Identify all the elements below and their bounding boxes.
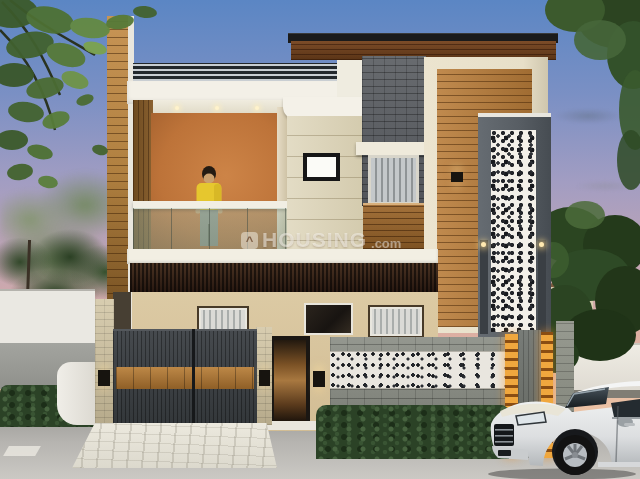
gate-split-line: [192, 329, 195, 425]
main-entry-door: [270, 336, 310, 425]
watermark-brand: HOUSING: [262, 228, 367, 252]
window-ledge: [356, 142, 433, 155]
ceiling-light: [215, 106, 219, 110]
entry-wall-lamp: [313, 371, 325, 387]
housing-caret-icon: ^: [241, 232, 258, 249]
tree-top-left: [0, 0, 175, 215]
perforated-jali-panel: [491, 130, 536, 332]
hedge-right: [316, 405, 509, 459]
gate-lamp-left: [98, 370, 110, 386]
jali-lamp: [481, 242, 486, 247]
road-marking: [3, 446, 41, 456]
white-suv: [488, 378, 640, 479]
paved-driveway: [70, 423, 277, 468]
gate-lamp-right: [259, 370, 270, 386]
gate-wood-band: [116, 367, 254, 389]
jali-lamp: [539, 242, 544, 247]
ground-window-right: [368, 305, 424, 338]
soffit-slat-band: [130, 263, 438, 293]
house-render-scene: ^ HOUSING .com: [0, 0, 640, 479]
left-boundary-wall-upper: [0, 289, 95, 347]
upper-window: [303, 153, 340, 181]
jali-side-bar: [538, 240, 546, 334]
gate-recess-shadow: [113, 292, 131, 331]
jali-side-bar: [480, 240, 488, 334]
watermark: ^ HOUSING .com: [241, 226, 416, 254]
watermark-suffix: .com: [371, 236, 401, 254]
boundary-wall-endcap: [57, 362, 97, 425]
ceiling-light: [175, 106, 179, 110]
ceiling-light: [255, 106, 259, 110]
gate-pillar-left: [95, 299, 114, 425]
ground-window-dark: [304, 303, 353, 335]
decorative-floral-band: [330, 351, 508, 389]
tower-wall-lamp: [451, 172, 463, 182]
balcony-window-blinds: [368, 155, 419, 205]
